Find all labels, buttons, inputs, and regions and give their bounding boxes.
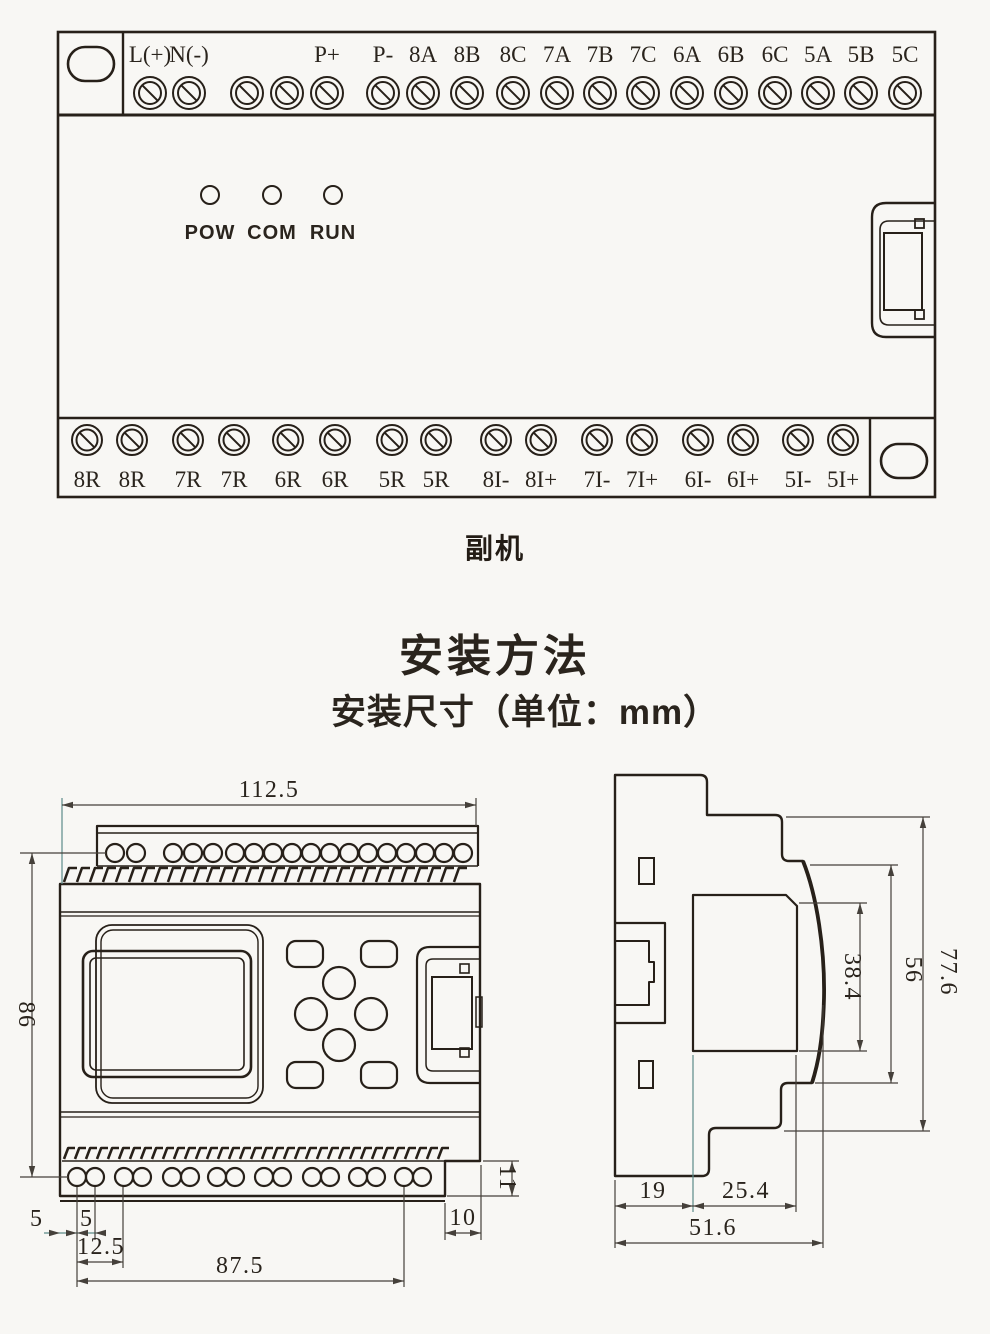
screw-slot: [635, 85, 651, 101]
screw-slot: [534, 433, 549, 448]
side-view-drawing: 38.45677.61925.451.6: [615, 775, 961, 1248]
screw-terminal-icon: [231, 77, 263, 109]
dimension-label: 5: [30, 1206, 42, 1232]
side-vent-bottom: [639, 1061, 653, 1088]
dimension-arrow: [857, 1040, 863, 1051]
screw-terminal-icon: [219, 425, 249, 455]
terminal-label-top: 5A: [804, 42, 833, 67]
front-terminal-hole: [163, 1168, 181, 1186]
screw-slot: [791, 433, 806, 448]
front-terminal-hole: [359, 844, 377, 862]
cover-seam-inner: [101, 930, 258, 1098]
dimension-arrow: [785, 1203, 796, 1209]
screw-terminal-icon: [273, 425, 303, 455]
terminal-label-bottom: 7R: [175, 467, 203, 492]
front-terminal-hole: [184, 844, 202, 862]
dimension-label: 51.6: [689, 1215, 737, 1241]
screw-slot: [592, 85, 608, 101]
screw-terminal-icon: [173, 77, 205, 109]
front-terminal-hole: [226, 1168, 244, 1186]
terminal-label-top: N(-): [169, 42, 209, 67]
dimension-label: 112.5: [239, 777, 300, 803]
vent-teeth: [64, 868, 467, 882]
screw-terminal-icon: [828, 425, 858, 455]
screw-slot: [853, 85, 869, 101]
front-terminal-hole: [454, 844, 472, 862]
screw-terminal-icon: [845, 77, 877, 109]
terminal-label-bottom: 8I+: [525, 467, 557, 492]
mounting-slot-bottom-right: [881, 444, 927, 478]
screw-slot: [415, 85, 431, 101]
keypad-round-button: [295, 998, 327, 1030]
screw-terminal-icon: [627, 425, 657, 455]
front-terminal-hole: [115, 1168, 133, 1186]
led-label: COM: [247, 222, 297, 244]
screw-slot: [181, 433, 196, 448]
dimension-label: 12.5: [77, 1234, 125, 1260]
side-inner-body: [693, 895, 797, 1051]
screw-slot: [181, 85, 197, 101]
keypad-pill-button: [287, 941, 323, 967]
screw-slot: [836, 433, 851, 448]
terminal-label-top: 6B: [718, 42, 745, 67]
front-terminal-hole: [86, 1168, 104, 1186]
terminal-label-top: 5C: [892, 42, 919, 67]
dimension-arrow: [615, 1203, 626, 1209]
screw-slot: [319, 85, 335, 101]
screw-terminal-icon: [377, 425, 407, 455]
screw-terminal-icon: [889, 77, 921, 109]
front-terminal-hole: [302, 844, 320, 862]
front-terminal-hole: [133, 1168, 151, 1186]
screw-slot: [691, 433, 706, 448]
dimension-label: 87.5: [216, 1253, 264, 1279]
front-terminal-hole: [435, 844, 453, 862]
screw-terminal-icon: [134, 77, 166, 109]
front-terminal-hole: [255, 1168, 273, 1186]
led-indicator-icon: [263, 186, 281, 204]
screen-inner: [90, 958, 244, 1070]
front-terminal-hole: [340, 844, 358, 862]
front-face-curve: [803, 861, 824, 1083]
dimension-arrow: [49, 1230, 60, 1236]
expansion-port: [872, 203, 935, 337]
terminal-label-bottom: 6R: [322, 467, 350, 492]
din-rail-slot: [615, 941, 654, 1005]
terminal-label-top: 7B: [587, 42, 614, 67]
front-terminal-hole: [397, 844, 415, 862]
dimension-arrow: [29, 1166, 35, 1177]
keypad-pill-button: [361, 941, 397, 967]
screw-slot: [125, 433, 140, 448]
screw-slot: [897, 85, 913, 101]
screw-terminal-icon: [627, 77, 659, 109]
side-vent-top: [639, 858, 654, 884]
dimension-arrow: [62, 802, 73, 808]
dimension-arrow: [77, 1278, 88, 1284]
screw-terminal-icon: [802, 77, 834, 109]
dimension-arrow: [66, 1230, 77, 1236]
screw-terminal-icon: [407, 77, 439, 109]
screw-slot: [80, 433, 95, 448]
screw-slot: [227, 433, 242, 448]
keypad-round-button: [323, 967, 355, 999]
dimension-arrow: [465, 802, 476, 808]
front-terminal-hole: [264, 844, 282, 862]
terminal-label-top: L(+): [129, 42, 171, 67]
screw-terminal-icon: [72, 425, 102, 455]
dimension-label: 38.4: [839, 953, 865, 1001]
screw-slot: [328, 433, 343, 448]
dimension-arrow: [920, 1120, 926, 1131]
screw-terminal-icon: [173, 425, 203, 455]
screw-slot: [723, 85, 739, 101]
screw-terminal-icon: [728, 425, 758, 455]
terminal-label-top: 6A: [673, 42, 702, 67]
screw-slot: [679, 85, 695, 101]
dimension-arrow: [857, 903, 863, 914]
screw-slot: [239, 85, 255, 101]
screw-terminal-icon: [117, 425, 147, 455]
front-terminal-hole: [395, 1168, 413, 1186]
front-terminal-hole: [378, 844, 396, 862]
dimension-label: 10: [450, 1205, 477, 1231]
page: { "page": { "background": "#f8f7f4", "in…: [0, 0, 990, 1334]
screw-slot: [429, 433, 444, 448]
terminal-label-bottom: 8I-: [483, 467, 510, 492]
device-caption: 副机: [0, 527, 990, 567]
terminal-label-top: P-: [373, 42, 393, 67]
dimension-label: 19: [640, 1178, 667, 1204]
screw-slot: [279, 85, 295, 101]
keypad-round-button: [355, 998, 387, 1030]
screw-terminal-icon: [481, 425, 511, 455]
terminal-label-bottom: 5R: [379, 467, 407, 492]
front-terminal-hole: [181, 1168, 199, 1186]
side-view-dimensions: 38.45677.61925.451.6: [615, 817, 961, 1248]
screw-terminal-icon: [497, 77, 529, 109]
front-terminal-hole: [303, 1168, 321, 1186]
terminal-label-bottom: 5I+: [827, 467, 859, 492]
front-terminal-hole: [416, 844, 434, 862]
screw-slot: [736, 433, 751, 448]
dimension-arrow: [682, 1203, 693, 1209]
screw-terminal-icon: [582, 425, 612, 455]
front-terminal-hole: [413, 1168, 431, 1186]
front-terminal-hole: [321, 1168, 339, 1186]
screw-terminal-icon: [671, 77, 703, 109]
led-indicator-icon: [201, 186, 219, 204]
screw-slot: [489, 433, 504, 448]
dimension-arrow: [393, 1278, 404, 1284]
terminal-label-bottom: 5I-: [785, 467, 812, 492]
front-terminal-hole: [321, 844, 339, 862]
terminal-diagram: L(+)N(-)P+P-8A8B8C7A7B7C6A6B6C5A5B5CPOWC…: [58, 32, 935, 497]
dimension-label: 5: [80, 1206, 92, 1232]
terminal-label-top: 7C: [630, 42, 657, 67]
dimension-label: 86: [13, 1002, 39, 1029]
screw-terminal-icon: [271, 77, 303, 109]
side-body-outline: [615, 775, 824, 1176]
terminal-label-top: 8A: [409, 42, 438, 67]
din-rail-block: [615, 923, 665, 1023]
terminal-label-bottom: 5R: [423, 467, 451, 492]
front-terminal-hole: [164, 844, 182, 862]
terminal-label-bottom: 6I-: [685, 467, 712, 492]
vent-teeth: [64, 1148, 449, 1159]
keypad-pill-button: [287, 1062, 323, 1088]
front-terminal-hole: [127, 844, 145, 862]
front-terminal-hole: [349, 1168, 367, 1186]
terminal-label-top: 5B: [848, 42, 875, 67]
screw-slot: [635, 433, 650, 448]
front-terminal-hole: [68, 1168, 86, 1186]
dimension-label: 56: [900, 957, 926, 984]
front-view-dimensions: 112.5865512.587.51011: [13, 777, 520, 1287]
dimension-label: 11: [494, 1165, 520, 1191]
terminal-label-bottom: 6R: [275, 467, 303, 492]
port-pin-top: [460, 964, 469, 973]
led-indicator-icon: [324, 186, 342, 204]
screw-terminal-icon: [526, 425, 556, 455]
screen-bezel: [83, 951, 251, 1077]
screw-slot: [459, 85, 475, 101]
screw-terminal-icon: [715, 77, 747, 109]
front-terminal-hole: [273, 1168, 291, 1186]
front-terminal-hole: [106, 844, 124, 862]
port-pin-bottom: [915, 310, 924, 319]
screw-slot: [142, 85, 158, 101]
terminal-label-bottom: 6I+: [727, 467, 759, 492]
dimension-arrow: [920, 817, 926, 828]
front-terminal-hole: [226, 844, 244, 862]
screw-slot: [505, 85, 521, 101]
dimension-label: 25.4: [722, 1178, 770, 1204]
dimension-arrow: [615, 1240, 626, 1246]
terminal-label-top: P+: [314, 42, 340, 67]
screw-terminal-icon: [541, 77, 573, 109]
screw-terminal-icon: [320, 425, 350, 455]
terminal-label-bottom: 7I-: [584, 467, 611, 492]
keypad-pill-button: [361, 1062, 397, 1088]
front-terminal-hole: [367, 1168, 385, 1186]
screw-slot: [767, 85, 783, 101]
screw-slot: [385, 433, 400, 448]
front-terminal-hole: [283, 844, 301, 862]
screw-terminal-icon: [683, 425, 713, 455]
screw-terminal-icon: [451, 77, 483, 109]
front-expansion-port: [417, 947, 482, 1083]
dimension-label: 77.6: [935, 948, 961, 996]
terminal-label-bottom: 7I+: [626, 467, 658, 492]
port-window: [432, 977, 472, 1049]
dimension-arrow: [888, 1072, 894, 1083]
install-method-title: 安装方法: [0, 620, 990, 684]
screw-slot: [549, 85, 565, 101]
screw-terminal-icon: [367, 77, 399, 109]
screw-slot: [375, 85, 391, 101]
screw-terminal-icon: [421, 425, 451, 455]
terminal-label-top: 6C: [762, 42, 789, 67]
led-label: RUN: [310, 222, 356, 244]
port-window: [884, 233, 922, 310]
screw-slot: [810, 85, 826, 101]
install-dimension-subtitle: 安装尺寸（单位：mm）: [30, 684, 990, 735]
screw-slot: [590, 433, 605, 448]
front-terminal-hole: [245, 844, 263, 862]
terminal-label-bottom: 8R: [119, 467, 147, 492]
front-terminal-hole: [208, 1168, 226, 1186]
terminal-label-bottom: 7R: [221, 467, 249, 492]
dimension-arrow: [812, 1240, 823, 1246]
terminal-label-top: 8C: [500, 42, 527, 67]
screw-terminal-icon: [783, 425, 813, 455]
screw-terminal-icon: [311, 77, 343, 109]
keypad-round-button: [323, 1029, 355, 1061]
terminal-label-top: 7A: [543, 42, 572, 67]
screw-terminal-icon: [759, 77, 791, 109]
dimension-arrow: [888, 865, 894, 876]
terminal-label-bottom: 8R: [74, 467, 102, 492]
screw-terminal-icon: [584, 77, 616, 109]
led-label: POW: [185, 222, 236, 244]
front-terminal-hole: [204, 844, 222, 862]
terminal-label-top: 8B: [454, 42, 481, 67]
front-view-drawing: 112.5865512.587.51011: [13, 777, 520, 1287]
screw-slot: [281, 433, 296, 448]
mounting-slot-top-left: [68, 47, 114, 81]
dimension-arrow: [29, 853, 35, 864]
dimension-arrow: [693, 1203, 704, 1209]
